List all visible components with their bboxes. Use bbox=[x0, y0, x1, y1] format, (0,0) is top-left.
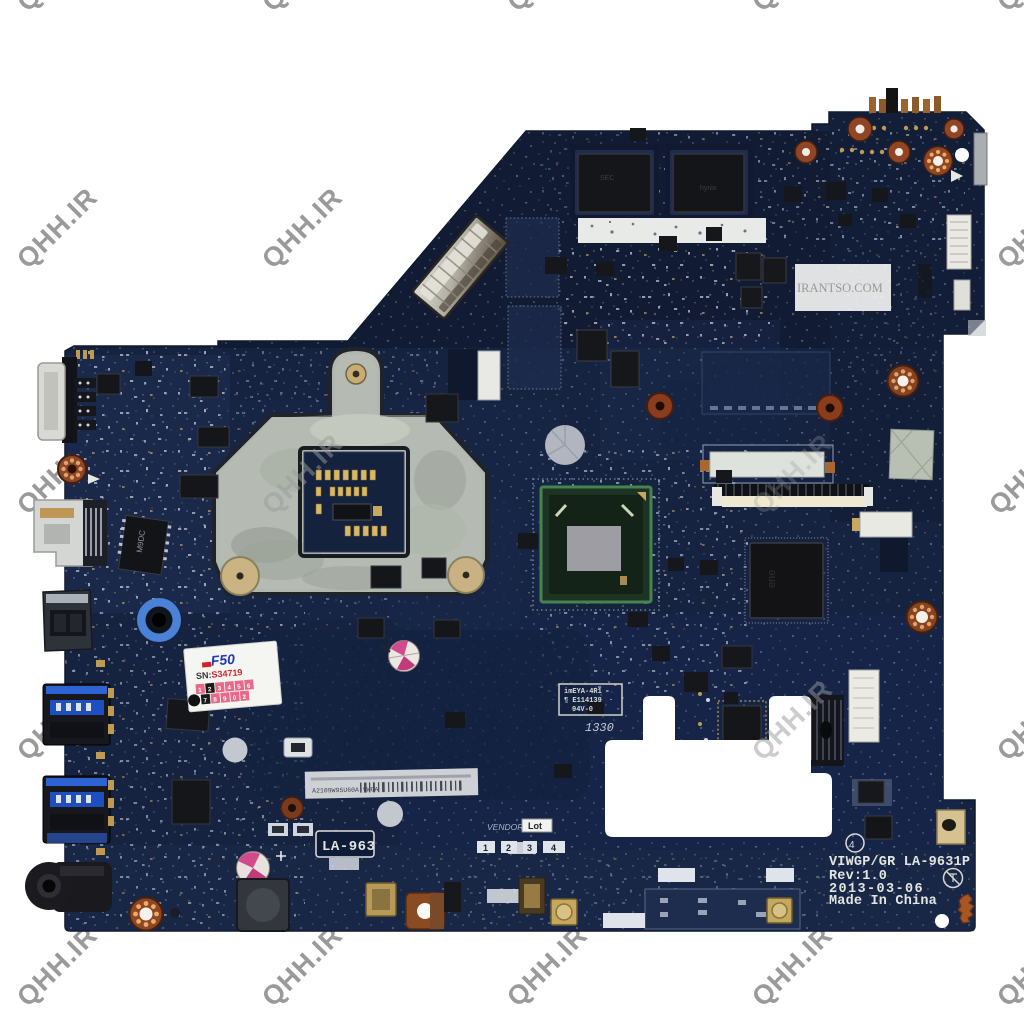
svg-text:1: 1 bbox=[483, 843, 488, 853]
svg-text:VIWGP/GR LA-9631P: VIWGP/GR LA-9631P bbox=[829, 855, 970, 870]
svg-text:4: 4 bbox=[551, 843, 556, 853]
svg-text:Lot: Lot bbox=[528, 821, 542, 831]
svg-text:¶ E114139: ¶ E114139 bbox=[564, 697, 602, 705]
svg-text:QHH.IR: QHH.IR bbox=[501, 0, 593, 17]
svg-text:A2109W95U60A VWGA: A2109W95U60A VWGA bbox=[312, 786, 379, 794]
svg-text:94V-0: 94V-0 bbox=[572, 706, 593, 714]
svg-text:QHH.IR: QHH.IR bbox=[991, 182, 1024, 274]
svg-text:VENDOR:: VENDOR: bbox=[487, 822, 526, 832]
svg-text:QHH.IR: QHH.IR bbox=[256, 0, 348, 17]
svg-text:QHH.IR: QHH.IR bbox=[991, 920, 1024, 1012]
svg-text:2: 2 bbox=[506, 843, 511, 853]
svg-text:QHH.IR: QHH.IR bbox=[11, 0, 103, 17]
svg-text:QHH.IR: QHH.IR bbox=[991, 0, 1024, 17]
svg-text:LA-963: LA-963 bbox=[322, 839, 375, 855]
svg-text:1330: 1330 bbox=[585, 721, 614, 735]
svg-text:IRANTSO.COM: IRANTSO.COM bbox=[797, 281, 883, 295]
svg-text:QHH.IR: QHH.IR bbox=[256, 920, 348, 1012]
svg-text:QHH.IR: QHH.IR bbox=[11, 920, 103, 1012]
svg-text:hynix: hynix bbox=[700, 185, 717, 192]
svg-text:QHH.IR: QHH.IR bbox=[746, 0, 838, 17]
svg-text:QHH.IR: QHH.IR bbox=[11, 182, 103, 274]
svg-text:SEC: SEC bbox=[600, 175, 614, 182]
svg-text:QHH.IR: QHH.IR bbox=[983, 428, 1024, 520]
svg-text:4: 4 bbox=[849, 840, 855, 851]
svg-text:QHH.IR: QHH.IR bbox=[991, 674, 1024, 766]
svg-text:QHH.IR: QHH.IR bbox=[746, 920, 838, 1012]
svg-text:imEYA-4R1: imEYA-4R1 bbox=[564, 688, 602, 696]
svg-text:3: 3 bbox=[527, 843, 532, 853]
svg-text:ene: ene bbox=[766, 570, 778, 588]
svg-text:QHH.IR: QHH.IR bbox=[501, 920, 593, 1012]
svg-text:Made In China: Made In China bbox=[829, 894, 937, 909]
svg-text:F50: F50 bbox=[210, 651, 236, 669]
svg-text:QHH.IR: QHH.IR bbox=[256, 182, 348, 274]
